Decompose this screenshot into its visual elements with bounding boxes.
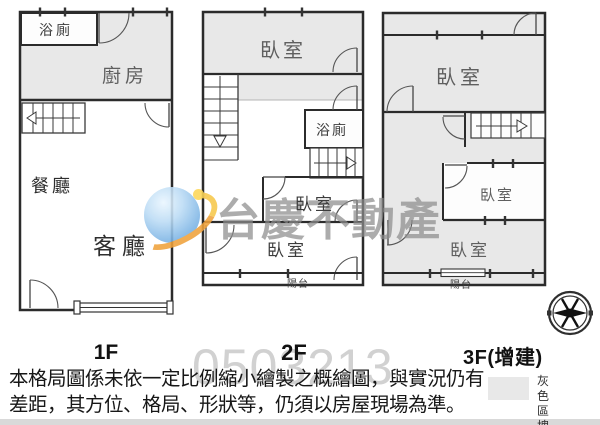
room-label-2f-bed-mid: 臥室 xyxy=(295,190,335,215)
room-label-2f-bed-top: 臥室 xyxy=(260,34,306,63)
room-label-3f-bed-low: 臥室 xyxy=(450,236,490,261)
compass-icon xyxy=(546,289,594,337)
legend-text-line-1: 灰色區塊 xyxy=(537,374,550,425)
stairs-3f xyxy=(471,113,545,138)
window-1f-bottom xyxy=(74,301,173,314)
stairs-2f-down xyxy=(204,74,238,160)
stairs-2f-up xyxy=(310,148,363,178)
legend-text: 灰色區塊 為增建 xyxy=(537,374,550,425)
room-label-3f-bed-mid: 臥室 xyxy=(480,184,514,205)
floor-label-1f: 1F xyxy=(86,341,126,365)
disclaimer-text: 本格局圖係未依一定比例縮小繪製之概繪圖，與實況仍有 差距，其方位、格局、形狀等，… xyxy=(9,366,484,418)
floor-label-2f: 2F xyxy=(272,340,316,366)
room-label-3f-balcony: 陽台 xyxy=(450,276,472,291)
room-label-2f-bath: 浴廁 xyxy=(316,120,348,140)
room-label-3f-bed-top: 臥室 xyxy=(436,61,484,90)
room-label-1f-living: 客廳 xyxy=(93,227,151,261)
room-label-1f-bath: 浴廁 xyxy=(39,20,73,40)
floorplan-image: 台慶不動產 0503213 浴廁 廚房 餐廳 客廳 臥室 浴廁 臥室 臥室 陽台… xyxy=(0,0,600,425)
disclaimer-line-2: 差距，其方位、格局、形狀等，仍須以房屋現場為準。 xyxy=(9,392,484,418)
floor-1f-plan xyxy=(20,8,173,315)
room-label-1f-dining: 餐廳 xyxy=(31,172,73,198)
bottom-border-strip xyxy=(0,419,600,425)
disclaimer-line-1: 本格局圖係未依一定比例縮小繪製之概繪圖，與實況仍有 xyxy=(9,366,484,392)
brand-logo-dot xyxy=(193,189,204,200)
room-label-2f-balcony: 陽台 xyxy=(287,275,309,290)
room-label-2f-bed-low: 臥室 xyxy=(267,236,307,261)
legend-gray-swatch xyxy=(488,377,529,400)
stairs-1f xyxy=(22,103,85,133)
room-label-1f-kitchen: 廚房 xyxy=(102,61,148,88)
